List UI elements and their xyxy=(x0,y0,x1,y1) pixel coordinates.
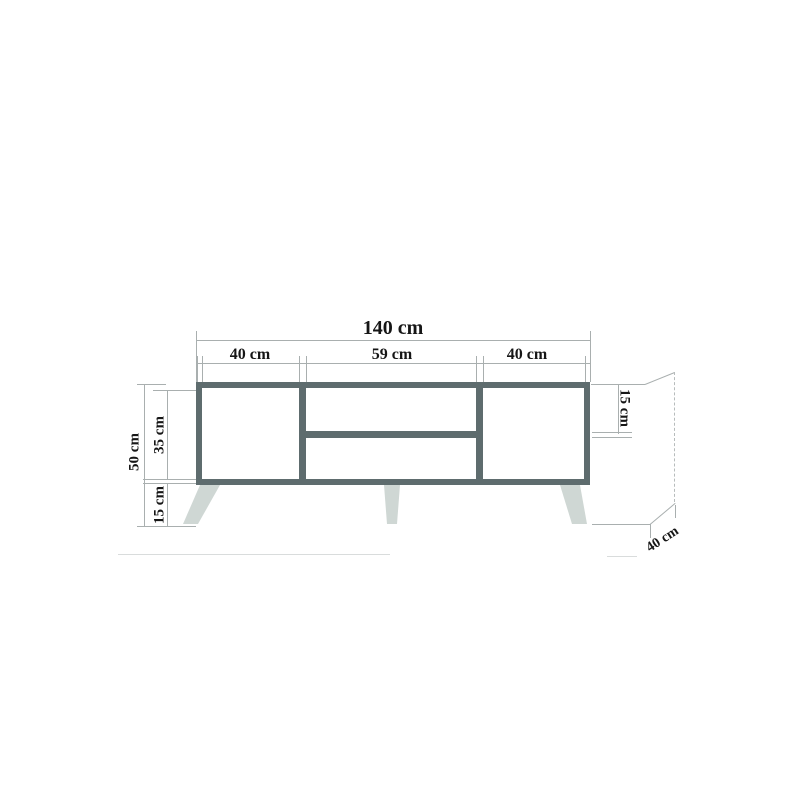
dimline-sections xyxy=(196,363,590,364)
tick-depth-far xyxy=(675,505,676,518)
tick-section-2 xyxy=(202,356,203,382)
label-leg-height: 15 cm xyxy=(153,486,168,524)
floor-line-left xyxy=(118,554,390,555)
floor-line-right xyxy=(607,556,637,557)
dimline-total-height xyxy=(144,384,145,526)
depth-dashed-line xyxy=(674,372,675,502)
label-total-width: 140 cm xyxy=(363,318,424,338)
dimline-total-width xyxy=(196,340,590,341)
extension-bottom-right xyxy=(592,524,650,525)
leg-left xyxy=(183,485,220,524)
leg-right xyxy=(560,485,587,524)
label-section-right: 40 cm xyxy=(507,347,547,363)
label-section-middle: 59 cm xyxy=(372,347,412,363)
label-top-compartment-height: 15 cm xyxy=(617,389,632,427)
tick-depth-near xyxy=(650,524,651,538)
label-section-left: 40 cm xyxy=(230,347,270,363)
extension-body-bottom-b xyxy=(143,483,196,484)
label-body-height: 35 cm xyxy=(153,416,168,454)
extension-shelf-level-a xyxy=(592,432,632,433)
extension-shelf-level-b xyxy=(592,437,632,438)
tick-section-1 xyxy=(197,356,198,382)
leg-middle xyxy=(384,485,400,524)
depth-diagonal-top xyxy=(645,372,675,385)
extension-top-right xyxy=(590,331,591,382)
cabinet-divider-left xyxy=(299,382,306,485)
tick-total-height-top xyxy=(137,384,166,385)
cabinet-divider-right xyxy=(476,382,483,485)
tick-section-3 xyxy=(299,356,300,382)
depth-diagonal-bottom xyxy=(650,503,676,525)
tick-total-height-bottom xyxy=(137,526,196,527)
label-total-height: 50 cm xyxy=(128,433,143,471)
tick-section-4 xyxy=(306,356,307,382)
extension-body-bottom-a xyxy=(143,479,196,480)
extension-body-top xyxy=(153,390,196,391)
cabinet-middle-shelf xyxy=(306,431,476,438)
tick-section-6 xyxy=(483,356,484,382)
tick-section-5 xyxy=(476,356,477,382)
furniture-dimension-diagram: 140 cm 40 cm 59 cm 40 cm 50 cm 35 cm 15 … xyxy=(0,0,800,800)
tick-section-7 xyxy=(585,356,586,382)
